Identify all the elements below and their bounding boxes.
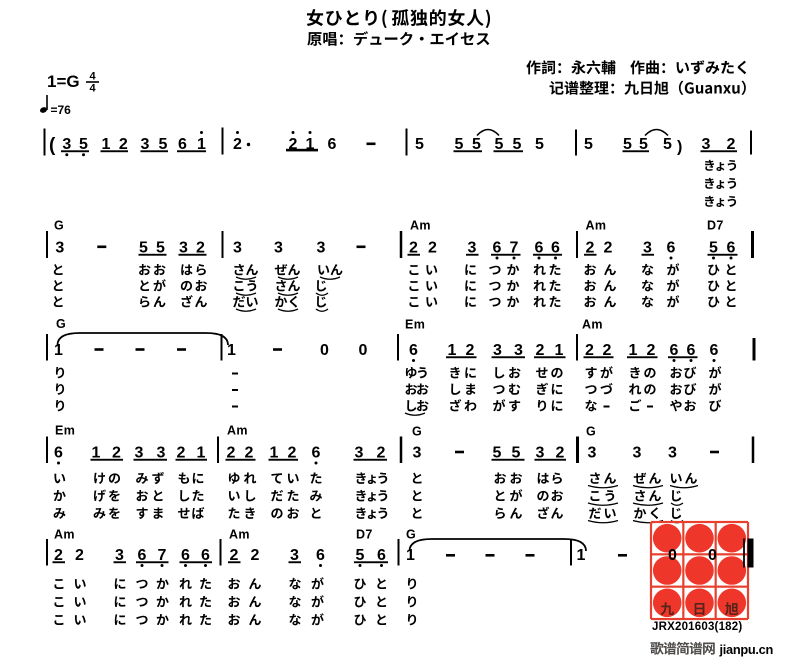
svg-text:1: 1: [406, 547, 415, 564]
svg-text:Am: Am: [54, 528, 75, 542]
svg-text:0: 0: [359, 342, 368, 359]
svg-text:1: 1: [54, 342, 63, 359]
svg-text:G: G: [586, 425, 596, 439]
svg-text:(: (: [49, 135, 56, 156]
svg-text:): ): [677, 139, 682, 156]
svg-text:1: 1: [227, 342, 236, 359]
svg-text:JRX201603(182): JRX201603(182): [652, 621, 742, 633]
svg-text:jianpu.cn: jianpu.cn: [719, 642, 774, 657]
svg-text:6: 6: [328, 136, 337, 153]
svg-text:6: 6: [710, 342, 719, 359]
svg-text:3: 3: [588, 445, 597, 462]
svg-text:3: 3: [233, 240, 242, 257]
svg-text:6: 6: [667, 240, 676, 257]
svg-text:Am: Am: [410, 219, 431, 233]
svg-text:2: 2: [233, 136, 242, 153]
svg-text:3: 3: [274, 240, 283, 257]
svg-text:6: 6: [312, 445, 321, 462]
svg-text:5: 5: [584, 136, 593, 153]
svg-text:3: 3: [55, 240, 64, 257]
svg-text:Am: Am: [229, 528, 250, 542]
svg-text:Em: Em: [55, 424, 75, 438]
svg-text:G: G: [56, 317, 66, 331]
svg-text:1: 1: [577, 547, 586, 564]
svg-text:Am: Am: [227, 424, 248, 438]
svg-text:0: 0: [708, 547, 717, 564]
svg-text:5: 5: [663, 136, 672, 153]
svg-text:Am: Am: [586, 219, 607, 233]
svg-text:6: 6: [54, 445, 63, 462]
svg-text:4: 4: [89, 83, 96, 95]
svg-text:2: 2: [75, 547, 84, 564]
svg-text:=76: =76: [51, 103, 72, 117]
svg-text:3: 3: [317, 240, 326, 257]
svg-text:6: 6: [316, 547, 325, 564]
svg-text:5: 5: [535, 136, 544, 153]
svg-text:0: 0: [668, 547, 677, 564]
svg-text:0: 0: [320, 342, 329, 359]
svg-text:1=G: 1=G: [47, 72, 80, 91]
svg-text:G: G: [412, 425, 422, 439]
svg-text:3: 3: [413, 445, 422, 462]
svg-text:2: 2: [251, 547, 260, 564]
svg-text:6: 6: [409, 342, 418, 359]
svg-text:Em: Em: [405, 318, 425, 332]
svg-text:2: 2: [428, 240, 437, 257]
svg-text:G: G: [54, 219, 64, 233]
svg-text:G: G: [406, 528, 416, 542]
svg-text:D7: D7: [707, 219, 724, 233]
svg-text:2: 2: [604, 240, 613, 257]
svg-text:5: 5: [415, 136, 424, 153]
svg-text:3: 3: [633, 445, 642, 462]
svg-text:Am: Am: [582, 318, 603, 332]
svg-text:4: 4: [89, 71, 96, 83]
svg-text:D7: D7: [356, 528, 373, 542]
svg-text:3: 3: [668, 445, 677, 462]
